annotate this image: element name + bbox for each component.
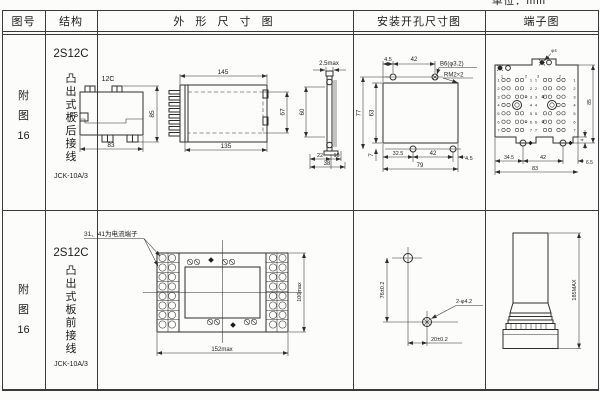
fig-char: 16 xyxy=(17,323,29,337)
terminal-row-num-left: 2 xyxy=(497,86,500,91)
terminal-row-num-right: 4 xyxy=(573,103,576,108)
fig-char: 16 xyxy=(17,129,29,143)
terminal-row-num-right: 2 xyxy=(573,86,576,91)
dim-4-5-bottom: 4.5 xyxy=(465,156,473,162)
profile-body xyxy=(503,233,558,349)
dim-42-bottom: 42 xyxy=(430,151,437,157)
dim-32-5: 32.5 xyxy=(393,151,404,157)
dim-152max: 152max xyxy=(211,347,232,353)
terminal-row-num-right: 7 xyxy=(573,128,576,133)
dim-height-85: 85 xyxy=(149,110,156,118)
terminal-row-num-mid: 6 xyxy=(535,119,538,124)
mount-char: 线 xyxy=(66,343,77,355)
terminal-row-num-mid: 3 xyxy=(535,94,538,99)
terminal-row-num-mid: 7 xyxy=(530,128,533,133)
terminal-top-num: 2 xyxy=(525,74,528,79)
dim-185max: 185MAX xyxy=(572,279,578,300)
dim-85-terminal: 85 xyxy=(587,99,593,105)
terminal-row-num-right: 5 xyxy=(573,111,576,116)
datasheet-page: 单位：mm 图号 结构 外 形 尺 寸 图 安装开孔尺寸图 端子图 附 图 16… xyxy=(0,0,600,400)
dim-76: 76±0.2 xyxy=(380,282,386,299)
terminal-row-num-mid: 2 xyxy=(530,86,533,91)
code-row1: JCK-10A/3 xyxy=(45,170,97,182)
section-view-dims xyxy=(304,67,346,169)
side-view-drawing: 145 135 67 xyxy=(165,68,305,160)
terminal-row-num-right: 6 xyxy=(573,119,576,124)
fig-char: 图 xyxy=(18,109,29,123)
mount-char: 凸 xyxy=(66,265,77,277)
header-terminal-diagram: 端子图 xyxy=(485,11,598,31)
terminal-row-num-mid: 6 xyxy=(530,119,533,124)
side-view-dims xyxy=(180,74,289,152)
terminal-panel-row1: φ4 1 2 3 2 1 2 3 4 5 6 7 1 1 2 2 3 3 4 4… xyxy=(488,45,600,180)
terminal-row-num-mid: 1 xyxy=(530,78,533,83)
row-divider xyxy=(2,210,599,211)
side-view-body xyxy=(169,85,268,142)
header-install-dims: 安装开孔尺寸图 xyxy=(353,11,485,31)
terminal-row-num-right: 3 xyxy=(573,94,576,99)
unit-label: 单位：mm xyxy=(492,0,546,8)
dim-60: 60 xyxy=(300,108,306,115)
terminal-row-num-left: 5 xyxy=(497,111,500,116)
terminal-row-num-mid: 5 xyxy=(535,111,538,116)
dim-38: 38 xyxy=(324,161,331,167)
terminal-screw-label: φ4 xyxy=(551,48,557,53)
install1-body xyxy=(383,74,461,152)
terminal-row-num-mid: 5 xyxy=(530,111,533,116)
terminal-row-num-left: 6 xyxy=(497,119,500,124)
side-profile-drawing: 185MAX xyxy=(495,228,595,355)
dim-100max: 100max xyxy=(297,282,303,302)
terminal-row-num-left: 7 xyxy=(497,128,500,133)
dim-10: 10 xyxy=(333,153,339,159)
terminal-top-num: 2 xyxy=(559,74,562,79)
wiring-dims xyxy=(84,239,306,357)
dim-63: 63 xyxy=(370,109,376,116)
terminal-row-num-left: 3 xyxy=(497,94,500,99)
front-view-dims xyxy=(80,86,159,152)
mount-char: 式 xyxy=(66,291,77,303)
header-outline-dims: 外 形 尺 寸 图 xyxy=(97,11,353,31)
section-view-drawing: 2.5max 60 22 10 38 xyxy=(300,58,355,173)
model-row1: 2S12C xyxy=(45,47,97,61)
terminal-row-num-mid: 2 xyxy=(535,86,538,91)
dim-83-terminal: 83 xyxy=(532,166,538,172)
table-bottom-rule xyxy=(2,389,599,391)
callout-rm2: RM2×2 xyxy=(444,73,464,79)
dim-77: 77 xyxy=(357,109,363,116)
dim-42-top: 42 xyxy=(411,57,418,63)
dim-79: 79 xyxy=(417,163,424,169)
terminal-row-num-mid: 7 xyxy=(535,128,538,133)
header-figure-no: 图号 xyxy=(2,11,45,31)
install-holes-row1: 4.5 42 B6(φ3.2) RM2×2 77 63 7 32.5 42 4.… xyxy=(355,50,483,178)
dim-20: 20±0.2 xyxy=(431,337,448,343)
dim-4-5-top: 4.5 xyxy=(384,57,392,63)
dim-145: 145 xyxy=(218,69,229,76)
dim-42-terminal: 42 xyxy=(540,155,546,161)
terminal-row-num-right: 1 xyxy=(573,78,576,83)
dim-4-step: 4 xyxy=(580,138,585,141)
callout-b6: B6(φ3.2) xyxy=(440,62,464,68)
label-12c: 12C xyxy=(102,76,115,83)
figure-no-row1: 附 图 16 xyxy=(2,86,45,146)
install-holes-row2: 76±0.2 20±0.2 2-φ4.2 xyxy=(370,240,485,352)
dim-width-83: 83 xyxy=(107,142,115,149)
front-view-body xyxy=(80,86,143,142)
current-terminal-note: 31、41为电流端子 xyxy=(84,229,138,238)
dim-22: 22 xyxy=(317,153,323,159)
fig-char: 附 xyxy=(18,283,29,297)
install2-body xyxy=(383,247,458,346)
terminal-row-num-mid: 4 xyxy=(535,103,538,108)
dim-135: 135 xyxy=(221,143,232,150)
mount-char: 前 xyxy=(66,317,77,329)
front-view-drawing: 12C 2S 83 85 xyxy=(68,65,178,160)
dim-34-5: 34.5 xyxy=(504,155,514,161)
col-divider-4 xyxy=(485,10,486,391)
terminal-top-num: 1 xyxy=(501,74,504,79)
dim-67: 67 xyxy=(280,108,287,116)
mount-char: 接 xyxy=(66,330,77,342)
figure-no-row2: 附 图 16 xyxy=(2,280,45,340)
fig-char: 图 xyxy=(18,303,29,317)
header-rule-2 xyxy=(2,34,599,35)
dim-2-5max: 2.5max xyxy=(319,61,339,67)
terminal-row-num-mid: 4 xyxy=(530,103,533,108)
front-wiring-drawing: 31、41为电流端子 152max 100max xyxy=(80,225,315,360)
callout-2-phi4-2: 2-φ4.2 xyxy=(456,299,472,305)
terminal-row-num-mid: 3 xyxy=(530,94,533,99)
fig-char: 附 xyxy=(18,89,29,103)
mount-char: 板 xyxy=(66,304,77,316)
wiring-body xyxy=(143,240,302,343)
mount-char: 出 xyxy=(66,278,77,290)
dim-6-5: 6.5 xyxy=(586,160,593,166)
section-view-body xyxy=(324,71,338,155)
dim-7: 7 xyxy=(369,153,375,157)
terminal-row-num-left: 4 xyxy=(497,103,500,108)
terminal-top-num: 3 xyxy=(537,74,540,79)
header-structure: 结构 xyxy=(45,11,97,31)
header-rule-1 xyxy=(2,31,599,32)
label-2s: 2S xyxy=(69,112,78,119)
